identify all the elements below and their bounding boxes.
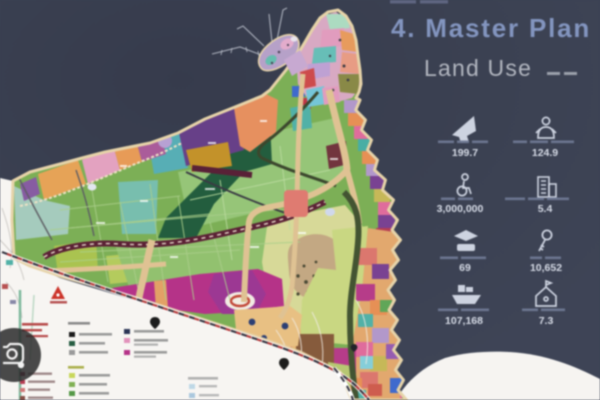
svg-text:10,652: 10,652 [530, 262, 562, 274]
svg-text:199.7: 199.7 [452, 147, 478, 159]
svg-text:107,168: 107,168 [445, 315, 483, 327]
svg-text:5.4: 5.4 [538, 203, 553, 215]
svg-text:124.9: 124.9 [532, 147, 558, 159]
svg-text:7.3: 7.3 [539, 315, 554, 327]
svg-text:69: 69 [459, 262, 471, 274]
svg-text:3,000,000: 3,000,000 [437, 203, 484, 215]
svg-text:4. Master Plan: 4. Master Plan [391, 13, 591, 43]
svg-text:Land Use: Land Use [424, 55, 532, 81]
